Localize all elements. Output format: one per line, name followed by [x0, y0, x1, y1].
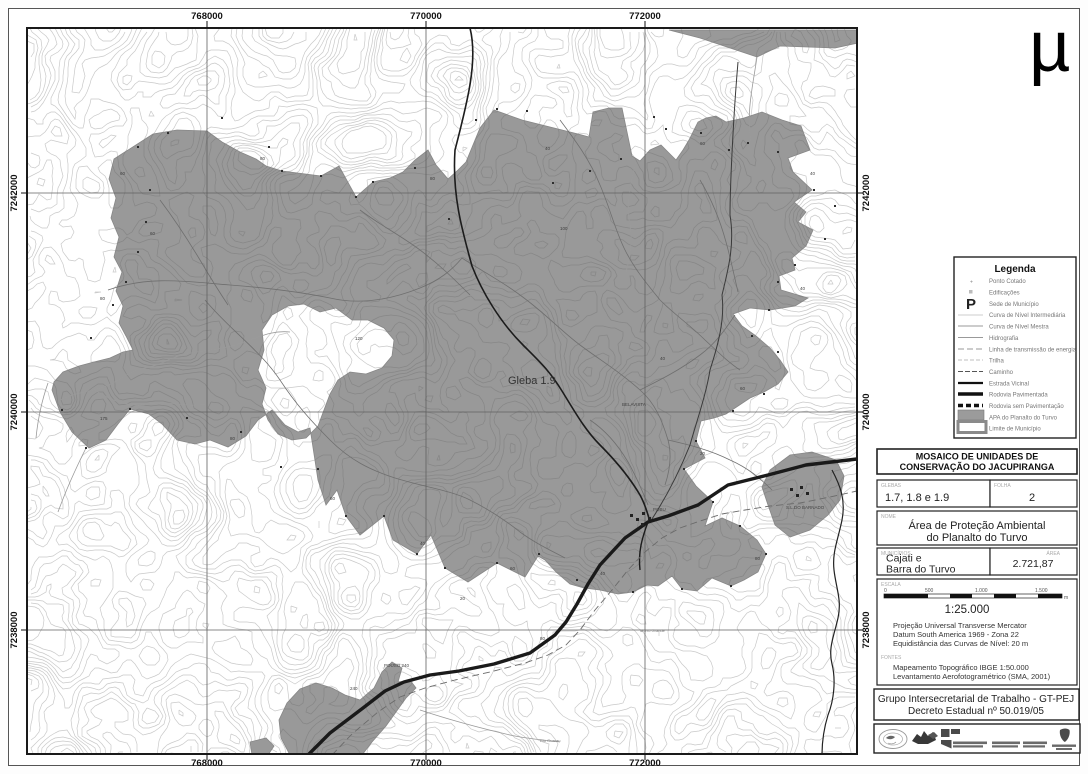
svg-text:APA do Planalto do Turvo: APA do Planalto do Turvo	[989, 415, 1058, 421]
svg-text:240: 240	[350, 686, 358, 691]
svg-text:7240000: 7240000	[9, 394, 20, 431]
svg-text:Decreto Estadual nº 50.019/05: Decreto Estadual nº 50.019/05	[908, 706, 1044, 717]
svg-text:7242000: 7242000	[9, 175, 20, 212]
svg-text:1:25.000: 1:25.000	[945, 604, 990, 616]
svg-text:Limite de Município: Limite de Município	[989, 427, 1041, 433]
svg-text:Linha de transmissão de energi: Linha de transmissão de energia	[989, 347, 1077, 353]
svg-text:40: 40	[600, 571, 606, 576]
svg-text:0: 0	[884, 588, 887, 594]
svg-text:Ponto Cotado: Ponto Cotado	[989, 279, 1026, 285]
svg-text:Trilha: Trilha	[989, 359, 1004, 365]
svg-text:Curva de Nível Mestra: Curva de Nível Mestra	[989, 325, 1049, 331]
svg-text:Curva de Nível Intermediária: Curva de Nível Intermediária	[989, 313, 1066, 319]
svg-text:1.000: 1.000	[975, 588, 988, 594]
svg-text:60: 60	[510, 566, 516, 571]
svg-text:2.721,87: 2.721,87	[1013, 558, 1054, 570]
svg-text:Levantamento Aerofotogramétric: Levantamento Aerofotogramétrico (SMA, 20…	[893, 672, 1051, 681]
svg-text:60: 60	[740, 386, 746, 391]
svg-text:BELAVISTA: BELAVISTA	[622, 402, 646, 407]
svg-text:120: 120	[355, 336, 363, 341]
svg-text:CONSERVAÇÃO DO JACUPIRANGA: CONSERVAÇÃO DO JACUPIRANGA	[900, 462, 1055, 472]
svg-text:POBU: POBU	[653, 507, 666, 512]
svg-text:FONTES: FONTES	[881, 655, 902, 661]
svg-text:+: +	[970, 280, 973, 286]
svg-text:7238000: 7238000	[9, 612, 20, 649]
svg-text:POUSO 240: POUSO 240	[384, 663, 410, 668]
svg-text:Grupo Intersecretarial de Trab: Grupo Intersecretarial de Trabalho - GT-…	[878, 694, 1074, 705]
svg-text:1.500: 1.500	[1035, 588, 1048, 594]
svg-text:Rodovia Pavimentada: Rodovia Pavimentada	[989, 393, 1048, 399]
svg-text:770000: 770000	[410, 11, 442, 22]
svg-text:175: 175	[100, 416, 108, 421]
svg-text:Estrada Vicinal: Estrada Vicinal	[989, 381, 1029, 387]
svg-text:60: 60	[330, 496, 336, 501]
svg-text:40: 40	[660, 356, 666, 361]
svg-text:80: 80	[230, 436, 236, 441]
svg-text:µ: µ	[1029, 7, 1070, 87]
svg-text:80: 80	[755, 556, 761, 561]
svg-text:100: 100	[560, 226, 568, 231]
svg-text:60: 60	[150, 231, 156, 236]
svg-text:Datum South America 1969 - Zon: Datum South America 1969 - Zona 22	[893, 630, 1019, 639]
svg-text:Área de Proteção Ambiental: Área de Proteção Ambiental	[909, 519, 1046, 532]
svg-text:P: P	[966, 296, 976, 313]
svg-text:Morro Grande: Morro Grande	[640, 628, 666, 633]
svg-text:Mapeamento Topográfico IBGE 1:: Mapeamento Topográfico IBGE 1:50.000	[893, 663, 1029, 672]
svg-text:Edificações: Edificações	[989, 291, 1020, 297]
svg-text:40: 40	[810, 171, 816, 176]
svg-text:772000: 772000	[629, 11, 661, 22]
svg-text:2: 2	[1029, 492, 1035, 504]
svg-text:Gleba 1.9: Gleba 1.9	[508, 375, 556, 387]
svg-text:80: 80	[540, 636, 546, 641]
svg-text:40: 40	[545, 146, 551, 151]
svg-text:500: 500	[925, 588, 934, 594]
svg-text:MOSAICO DE UNIDADES DE: MOSAICO DE UNIDADES DE	[916, 452, 1039, 462]
svg-text:Caminho: Caminho	[989, 370, 1014, 376]
svg-text:Rio Guarau: Rio Guarau	[540, 738, 560, 743]
svg-text:Sede de Município: Sede de Município	[989, 302, 1039, 308]
svg-text:60: 60	[700, 141, 706, 146]
svg-text:Hidrografia: Hidrografia	[989, 336, 1019, 342]
svg-text:60: 60	[120, 171, 126, 176]
svg-text:Equidistância das Curvas de Ní: Equidistância das Curvas de Nível: 20 m	[893, 639, 1028, 648]
svg-text:GLEBAS: GLEBAS	[881, 483, 902, 489]
svg-text:Rodovia sem Pavimentação: Rodovia sem Pavimentação	[989, 404, 1064, 410]
svg-text:20: 20	[460, 596, 466, 601]
svg-text:FOLHA: FOLHA	[994, 483, 1011, 489]
svg-text:do Planalto do Turvo: do Planalto do Turvo	[927, 532, 1028, 544]
svg-text:S.L.DO BARNADO: S.L.DO BARNADO	[786, 505, 825, 510]
svg-text:80: 80	[260, 156, 266, 161]
svg-text:40: 40	[420, 541, 426, 546]
svg-text:ÁREA: ÁREA	[1046, 550, 1060, 557]
svg-text:40: 40	[800, 286, 806, 291]
svg-text:768000: 768000	[191, 11, 223, 22]
svg-text:80: 80	[430, 176, 436, 181]
svg-text:NOME: NOME	[881, 514, 897, 520]
svg-text:Legenda: Legenda	[994, 264, 1036, 275]
svg-text:Barra do Turvo: Barra do Turvo	[886, 564, 956, 576]
svg-text:m: m	[1064, 595, 1068, 601]
svg-text:1.7, 1.8 e 1.9: 1.7, 1.8 e 1.9	[885, 492, 949, 504]
svg-text:20: 20	[700, 451, 706, 456]
svg-text:Projeção Universal Transverse: Projeção Universal Transverse Mercator	[893, 621, 1027, 630]
svg-text:80: 80	[100, 296, 106, 301]
